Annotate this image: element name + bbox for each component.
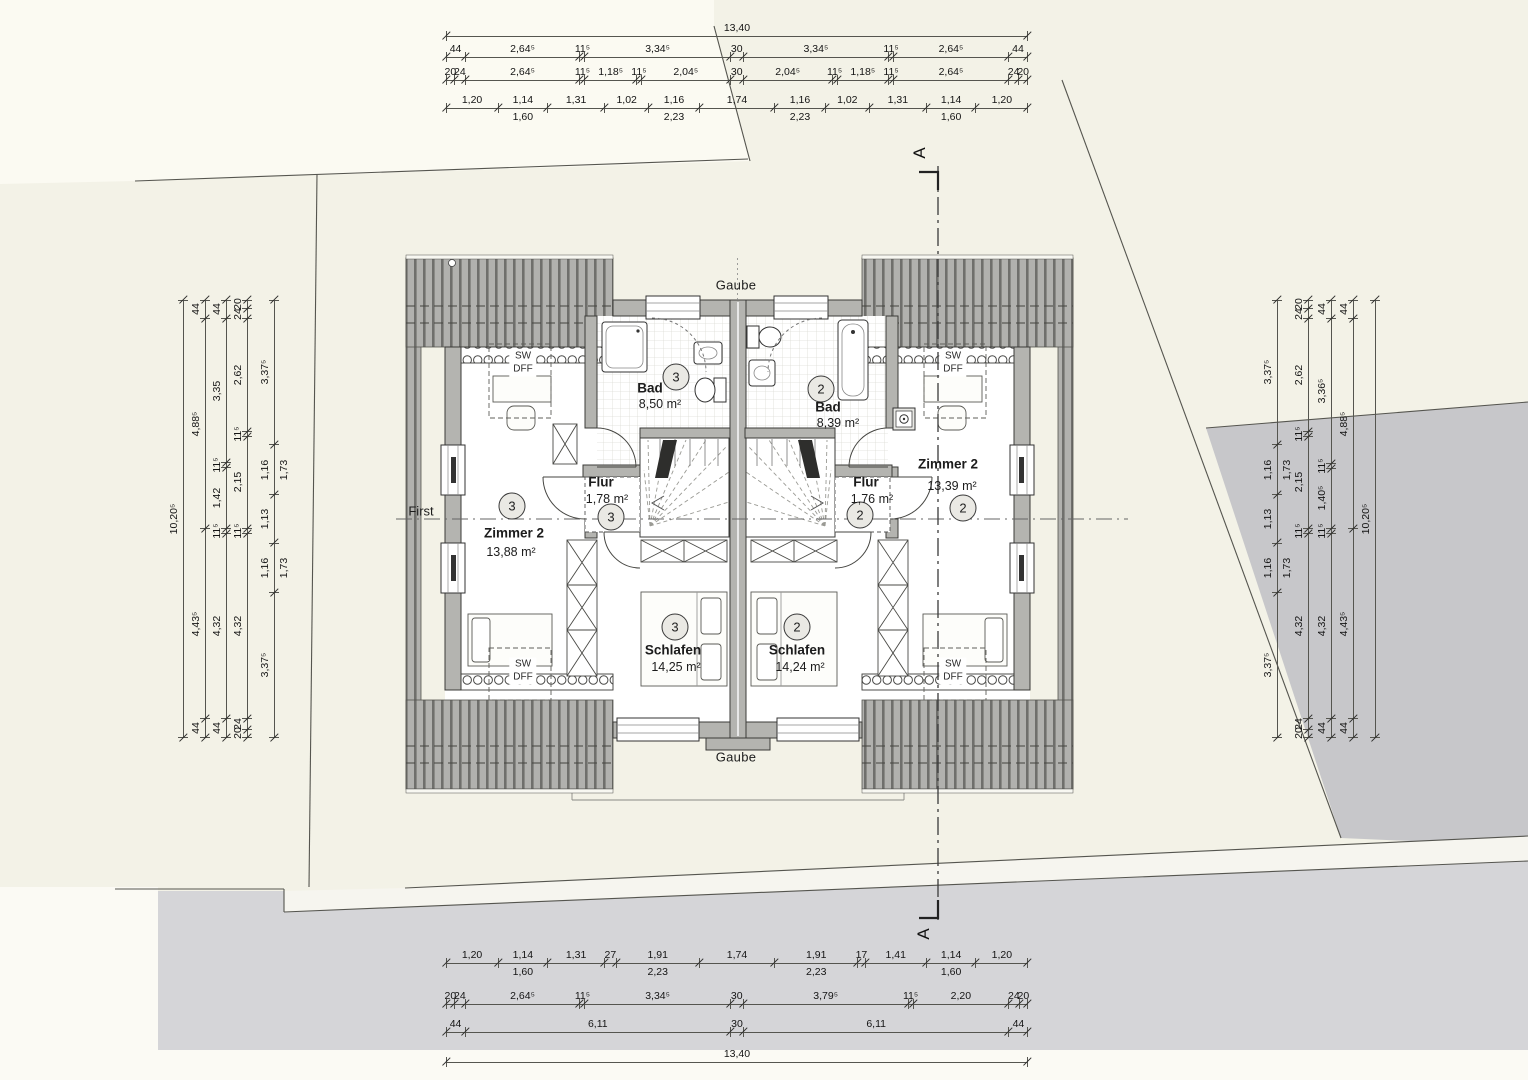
room-area: 1,76 m² [851, 492, 893, 506]
dim-label: 24 [454, 990, 466, 1002]
dim-label: 44 [1338, 304, 1350, 316]
dim-label: 1,14 [941, 949, 961, 961]
dim-line [446, 1004, 1028, 1005]
dim-label: 44 [1013, 1018, 1025, 1030]
ridge-cap-bottom-left [406, 789, 613, 793]
section-flag-top [919, 172, 938, 190]
dim-label: 11⁵ [883, 43, 898, 55]
dim-label: 44 [1012, 43, 1024, 55]
dim-label: 30 [731, 990, 743, 1002]
skylight-label: SW DFF [939, 350, 966, 377]
dim-line [1375, 300, 1376, 738]
room-area: 14,24 m² [775, 660, 824, 674]
dim-label: 1,16 [664, 94, 684, 106]
dim-label: 4,32 [1293, 616, 1305, 636]
wall-left-unit [585, 316, 597, 428]
dim-sublabel: 2,23 [806, 966, 826, 978]
dormer-label-top: Gaube [716, 278, 757, 293]
dim-label: 11⁵ [903, 990, 918, 1002]
dim-line [446, 36, 1028, 37]
skylight-label-line1: SW [943, 659, 962, 672]
room-area: 13,88 m² [486, 545, 535, 559]
dim-label: 44 [450, 1018, 462, 1030]
unit-badge: 2 [950, 495, 977, 522]
dim-label: 11⁵ [883, 66, 898, 78]
building [396, 166, 1128, 920]
room-area: 8,39 m² [817, 416, 859, 430]
room-area: 13,39 m² [927, 479, 976, 493]
dim-label: 1,31 [566, 949, 586, 961]
dim-label: 2,15 [232, 472, 244, 492]
skylight-label-line1: SW [943, 351, 962, 364]
roof-bottom-left [406, 700, 613, 789]
dim-label: 1,74 [727, 94, 747, 106]
dim-label: 13,40 [724, 1048, 750, 1060]
neighbor-parcel [1206, 402, 1528, 846]
dim-label: 3,36⁵ [1316, 379, 1328, 404]
dim-label: 1,16 [1262, 460, 1274, 480]
dim-sublabel: 1,60 [941, 111, 961, 123]
dim-label: 20 [232, 728, 244, 740]
dim-label: 4,43⁵ [1338, 611, 1350, 636]
unit-badge: 2 [784, 614, 811, 641]
room-area: 1,78 m² [586, 492, 628, 506]
skylight-label-line1: SW [513, 351, 532, 364]
room-name: Bad [815, 400, 841, 415]
dim-label: 1,14 [941, 94, 961, 106]
wc-left-tank [714, 378, 726, 402]
dim-line [446, 80, 1028, 81]
dim-label: 44 [450, 43, 462, 55]
room-name: Flur [853, 475, 879, 490]
dim-label: 1,13 [1262, 509, 1274, 529]
ridge-cap-bottom-right [862, 789, 1073, 793]
dim-label: 1,16 [790, 94, 810, 106]
dim-label: 2,64⁵ [510, 43, 535, 55]
skylight-label: SW DFF [509, 350, 536, 377]
room-area: 8,50 m² [639, 397, 681, 411]
window-dormer-bottom-right [777, 718, 859, 741]
skylight-label-line2: DFF [943, 671, 962, 684]
window-dormer-top-left [646, 296, 700, 319]
dim-label: 10,20⁵ [168, 504, 180, 535]
dim-line [446, 57, 1028, 58]
dim-label: 44 [211, 304, 223, 316]
dim-label: 4,32 [211, 616, 223, 636]
wc-right-tank [747, 326, 759, 348]
dormer-label-bottom: Gaube [716, 750, 757, 765]
dim-label: 1,13 [259, 509, 271, 529]
dim-line [446, 1032, 1028, 1033]
dim-label: 24 [454, 66, 466, 78]
dim-label: 11⁵ [232, 426, 244, 441]
site-margin-bottom [0, 1050, 1528, 1080]
downpipe-icon [449, 260, 456, 267]
dim-label: 44 [190, 722, 202, 734]
window-dormer-top-right [774, 296, 828, 319]
dim-label: 2,64⁵ [939, 43, 964, 55]
dim-label: 44 [1316, 722, 1328, 734]
dim-sublabel: 2,23 [648, 966, 668, 978]
dim-label: 3,79⁵ [813, 990, 838, 1002]
dim-line [247, 300, 248, 738]
dim-label: 11⁵ [575, 990, 590, 1002]
dim-label: 44 [211, 722, 223, 734]
dim-label: 1,16 [1262, 558, 1274, 578]
room-name: Bad [637, 381, 663, 396]
dim-line [446, 1062, 1028, 1063]
roof-top-left [406, 258, 613, 347]
dim-label: 11⁵ [1293, 426, 1305, 441]
wc-right-icon [759, 327, 781, 347]
dim-label: 1,16 [259, 558, 271, 578]
dim-label: 13,40 [724, 22, 750, 34]
dim-sublabel: 1,73 [1281, 460, 1293, 480]
dim-label: 2,64⁵ [510, 66, 535, 78]
dim-label: 4,43⁵ [190, 611, 202, 636]
room-name: Schlafen [769, 643, 825, 658]
unit-badge: 3 [662, 614, 689, 641]
skylight-label-line1: SW [513, 659, 532, 672]
dim-label: 44 [1316, 304, 1328, 316]
dim-label: 4,88⁵ [190, 411, 202, 436]
dim-label: 1,20 [462, 94, 482, 106]
dim-label: 1,91 [806, 949, 826, 961]
site-margin-left [0, 887, 158, 1050]
dim-line [446, 963, 1028, 964]
dim-label: 1,02 [616, 94, 636, 106]
ridge-cap-top-left [406, 255, 613, 259]
dim-sublabel: 2,23 [790, 111, 810, 123]
room-name: Zimmer 2 [918, 457, 978, 472]
dim-label: 1,14 [513, 949, 533, 961]
dim-label: 1,74 [727, 949, 747, 961]
room-area: 14,25 m² [651, 660, 700, 674]
dim-label: 2,64⁵ [939, 66, 964, 78]
dim-label: 2,62 [232, 365, 244, 385]
dim-label: 4,88⁵ [1338, 411, 1350, 436]
dim-label: 4,32 [1316, 616, 1328, 636]
dim-label: 2,15 [1293, 472, 1305, 492]
dim-sublabel: 1,60 [513, 111, 533, 123]
skylight-label: SW DFF [939, 658, 966, 685]
dim-label: 1,16 [259, 460, 271, 480]
dim-sublabel: 1,60 [941, 966, 961, 978]
dim-label: 1,41 [885, 949, 905, 961]
dim-label: 24 [1293, 308, 1305, 320]
skylight-label-line2: DFF [513, 671, 532, 684]
dim-label: 10,20⁵ [1360, 504, 1372, 535]
unit-badge: 3 [663, 364, 690, 391]
dim-sublabel: 1,73 [278, 460, 290, 480]
unit-badge: 3 [499, 493, 526, 520]
dim-label: 11⁵ [1316, 458, 1328, 473]
dim-label: 1,42 [211, 488, 223, 508]
dim-sublabel: 2,23 [664, 111, 684, 123]
dim-label: 1,40⁵ [1316, 486, 1328, 511]
skylight-label-line2: DFF [513, 363, 532, 376]
ridge-label: First [408, 504, 433, 519]
dim-line [183, 300, 184, 738]
dim-label: 20 [1293, 728, 1305, 740]
dim-label: 11⁵ [211, 523, 223, 538]
dim-label: 30 [731, 66, 743, 78]
dim-label: 1,18⁵ [850, 66, 875, 78]
dim-label: 1,14 [513, 94, 533, 106]
dim-sublabel: 1,73 [278, 558, 290, 578]
dim-label: 1,31 [566, 94, 586, 106]
dim-label: 30 [731, 1018, 743, 1030]
dim-label: 27 [605, 949, 617, 961]
dim-label: 3,34⁵ [804, 43, 829, 55]
wall-stub-bottom [706, 738, 770, 750]
dim-line [446, 108, 1028, 109]
dim-label: 11⁵ [575, 66, 590, 78]
dim-label: 11⁵ [631, 66, 646, 78]
dim-label: 1,20 [462, 949, 482, 961]
dim-label: 2,04⁵ [775, 66, 800, 78]
dim-line [226, 300, 227, 738]
dim-label: 44 [1338, 722, 1350, 734]
room-name: Flur [588, 475, 614, 490]
dim-label: 30 [731, 43, 743, 55]
dim-label: 11⁵ [232, 523, 244, 538]
dim-label: 3,37⁵ [1262, 653, 1274, 678]
dim-label: 2,20 [951, 990, 971, 1002]
dim-line [1277, 300, 1278, 738]
dim-label: 44 [190, 304, 202, 316]
dim-label: 1,31 [888, 94, 908, 106]
desk-right [924, 376, 982, 402]
dim-label: 3,37⁵ [259, 360, 271, 385]
dim-line [1308, 300, 1309, 738]
section-label-bottom: A [914, 928, 934, 939]
wc-left-icon [695, 378, 715, 402]
dim-label: 2,62 [1293, 365, 1305, 385]
ridge-cap-top-right [862, 255, 1073, 259]
dim-label: 24 [232, 308, 244, 320]
site-area-upper [0, 0, 750, 184]
skylight-label-line2: DFF [943, 363, 962, 376]
unit-badge: 3 [598, 504, 625, 531]
desk-left [493, 376, 551, 402]
dim-label: 11⁵ [1293, 523, 1305, 538]
floor-plan-canvas: Gaube Gaube First A A 3 Zimmer 2 13,88 m… [0, 0, 1528, 1080]
dim-label: 2,04⁵ [673, 66, 698, 78]
dim-label: 3,37⁵ [1262, 360, 1274, 385]
dim-label: 1,18⁵ [598, 66, 623, 78]
roof-bottom-right [862, 700, 1073, 789]
dim-label: 1,91 [648, 949, 668, 961]
dim-label: 2,64⁵ [510, 990, 535, 1002]
wall-stair-left [640, 428, 730, 438]
dim-label: 4,32 [232, 616, 244, 636]
dim-line [1353, 300, 1354, 738]
room-name: Zimmer 2 [484, 526, 544, 541]
room-name: Schlafen [645, 643, 701, 658]
dim-label: 17 [856, 949, 868, 961]
dim-line [1331, 300, 1332, 738]
window-dormer-bottom-left [617, 718, 699, 741]
dim-label: 20 [1017, 66, 1029, 78]
dim-label: 1,20 [992, 94, 1012, 106]
dim-label: 3,34⁵ [645, 43, 670, 55]
skylight-label: SW DFF [509, 658, 536, 685]
stair-left [640, 438, 729, 537]
dim-label: 20 [1018, 990, 1030, 1002]
dim-label: 6,11 [588, 1018, 608, 1030]
dim-sublabel: 1,73 [1281, 558, 1293, 578]
dim-line [205, 300, 206, 738]
dim-label: 11⁵ [575, 43, 590, 55]
dim-label: 1,02 [837, 94, 857, 106]
dim-label: 11⁵ [211, 457, 223, 472]
dim-sublabel: 1,60 [513, 966, 533, 978]
dim-label: 11⁵ [1316, 523, 1328, 538]
stair-right [746, 438, 835, 537]
dim-label: 3,37⁵ [259, 653, 271, 678]
dim-label: 6,11 [866, 1018, 886, 1030]
dim-label: 1,20 [992, 949, 1012, 961]
unit-badge: 2 [808, 376, 835, 403]
dim-label: 3,35 [211, 381, 223, 401]
dim-line [274, 300, 275, 738]
section-label-top: A [910, 147, 930, 158]
floor-plan-drawing [0, 0, 1528, 1080]
dim-label: 11⁵ [827, 66, 842, 78]
dim-label: 3,34⁵ [645, 990, 670, 1002]
